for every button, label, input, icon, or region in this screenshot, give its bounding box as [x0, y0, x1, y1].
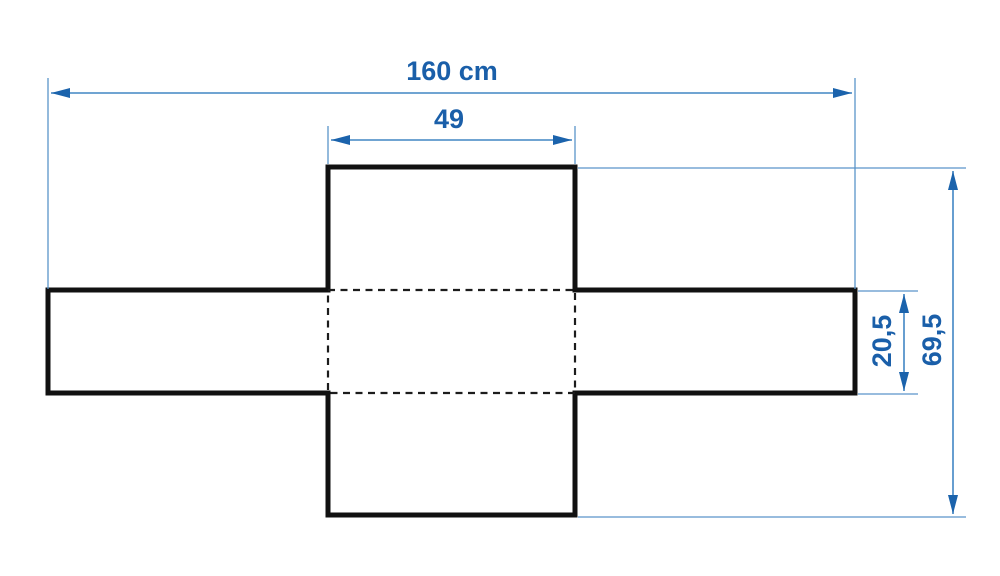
fold-line-rect	[328, 290, 575, 393]
dimension-label-total-height: 69,5	[917, 314, 947, 367]
dimension-label-total-width: 160 cm	[406, 56, 498, 86]
dimension-total-height: 69,5	[578, 168, 966, 517]
fabric-outline	[48, 167, 855, 515]
dimension-band-height: 20,5	[858, 291, 918, 394]
pattern-diagram: 160 cm 49 20,5 69,5	[0, 0, 1000, 576]
pattern-diagram-canvas: 160 cm 49 20,5 69,5	[0, 0, 1000, 576]
dimension-label-band-height: 20,5	[867, 315, 897, 368]
dimension-label-center-width: 49	[434, 104, 464, 134]
dimension-total-width: 160 cm	[48, 56, 855, 289]
dimension-center-width: 49	[328, 104, 575, 164]
